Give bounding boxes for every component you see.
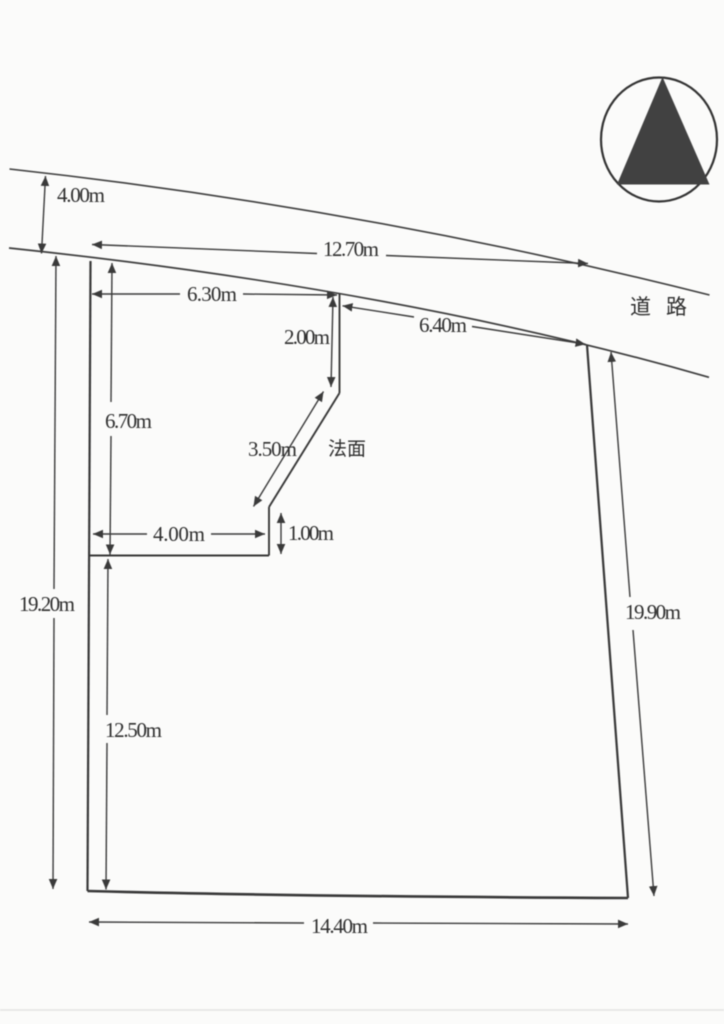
svg-text:12.50m: 12.50m [105,718,162,742]
svg-text:6.40m: 6.40m [419,313,467,337]
svg-text:19.90m: 19.90m [625,600,681,624]
svg-text:法面: 法面 [328,438,366,460]
svg-text:14.40m: 14.40m [311,914,368,938]
svg-text:6.30m: 6.30m [187,282,237,306]
svg-text:4.00m: 4.00m [153,522,205,546]
svg-text:4.00m: 4.00m [57,183,105,207]
svg-text:12.70m: 12.70m [323,237,379,261]
svg-text:道路: 道路 [630,295,702,319]
svg-text:3.50m: 3.50m [248,437,297,461]
svg-text:6.70m: 6.70m [105,409,152,433]
svg-text:2.00m: 2.00m [284,325,330,349]
svg-text:1.00m: 1.00m [288,521,334,545]
svg-text:19.20m: 19.20m [19,592,75,616]
